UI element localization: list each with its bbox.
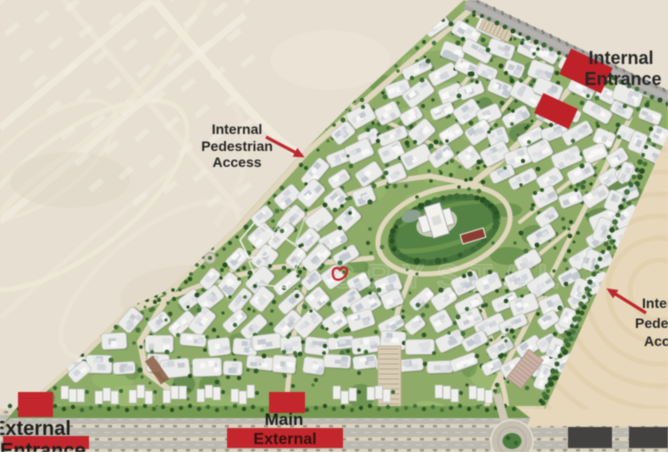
svg-text:Access: Access <box>212 154 261 170</box>
svg-text:Internal: Internal <box>212 121 263 137</box>
svg-text:Internal: Internal <box>642 295 668 311</box>
svg-text:CRYSTAL: CRYSTAL <box>330 258 571 296</box>
svg-text:Pedestrian: Pedestrian <box>635 315 668 331</box>
svg-text:Entrance: Entrance <box>0 440 86 452</box>
svg-text:External: External <box>0 418 71 440</box>
svg-text:Pedestrian: Pedestrian <box>201 138 273 154</box>
svg-text:Entrance: Entrance <box>584 69 661 89</box>
svg-text:External: External <box>253 431 316 448</box>
svg-text:Main: Main <box>265 410 304 429</box>
svg-text:Access: Access <box>644 333 668 349</box>
svg-text:Internal: Internal <box>588 48 653 68</box>
